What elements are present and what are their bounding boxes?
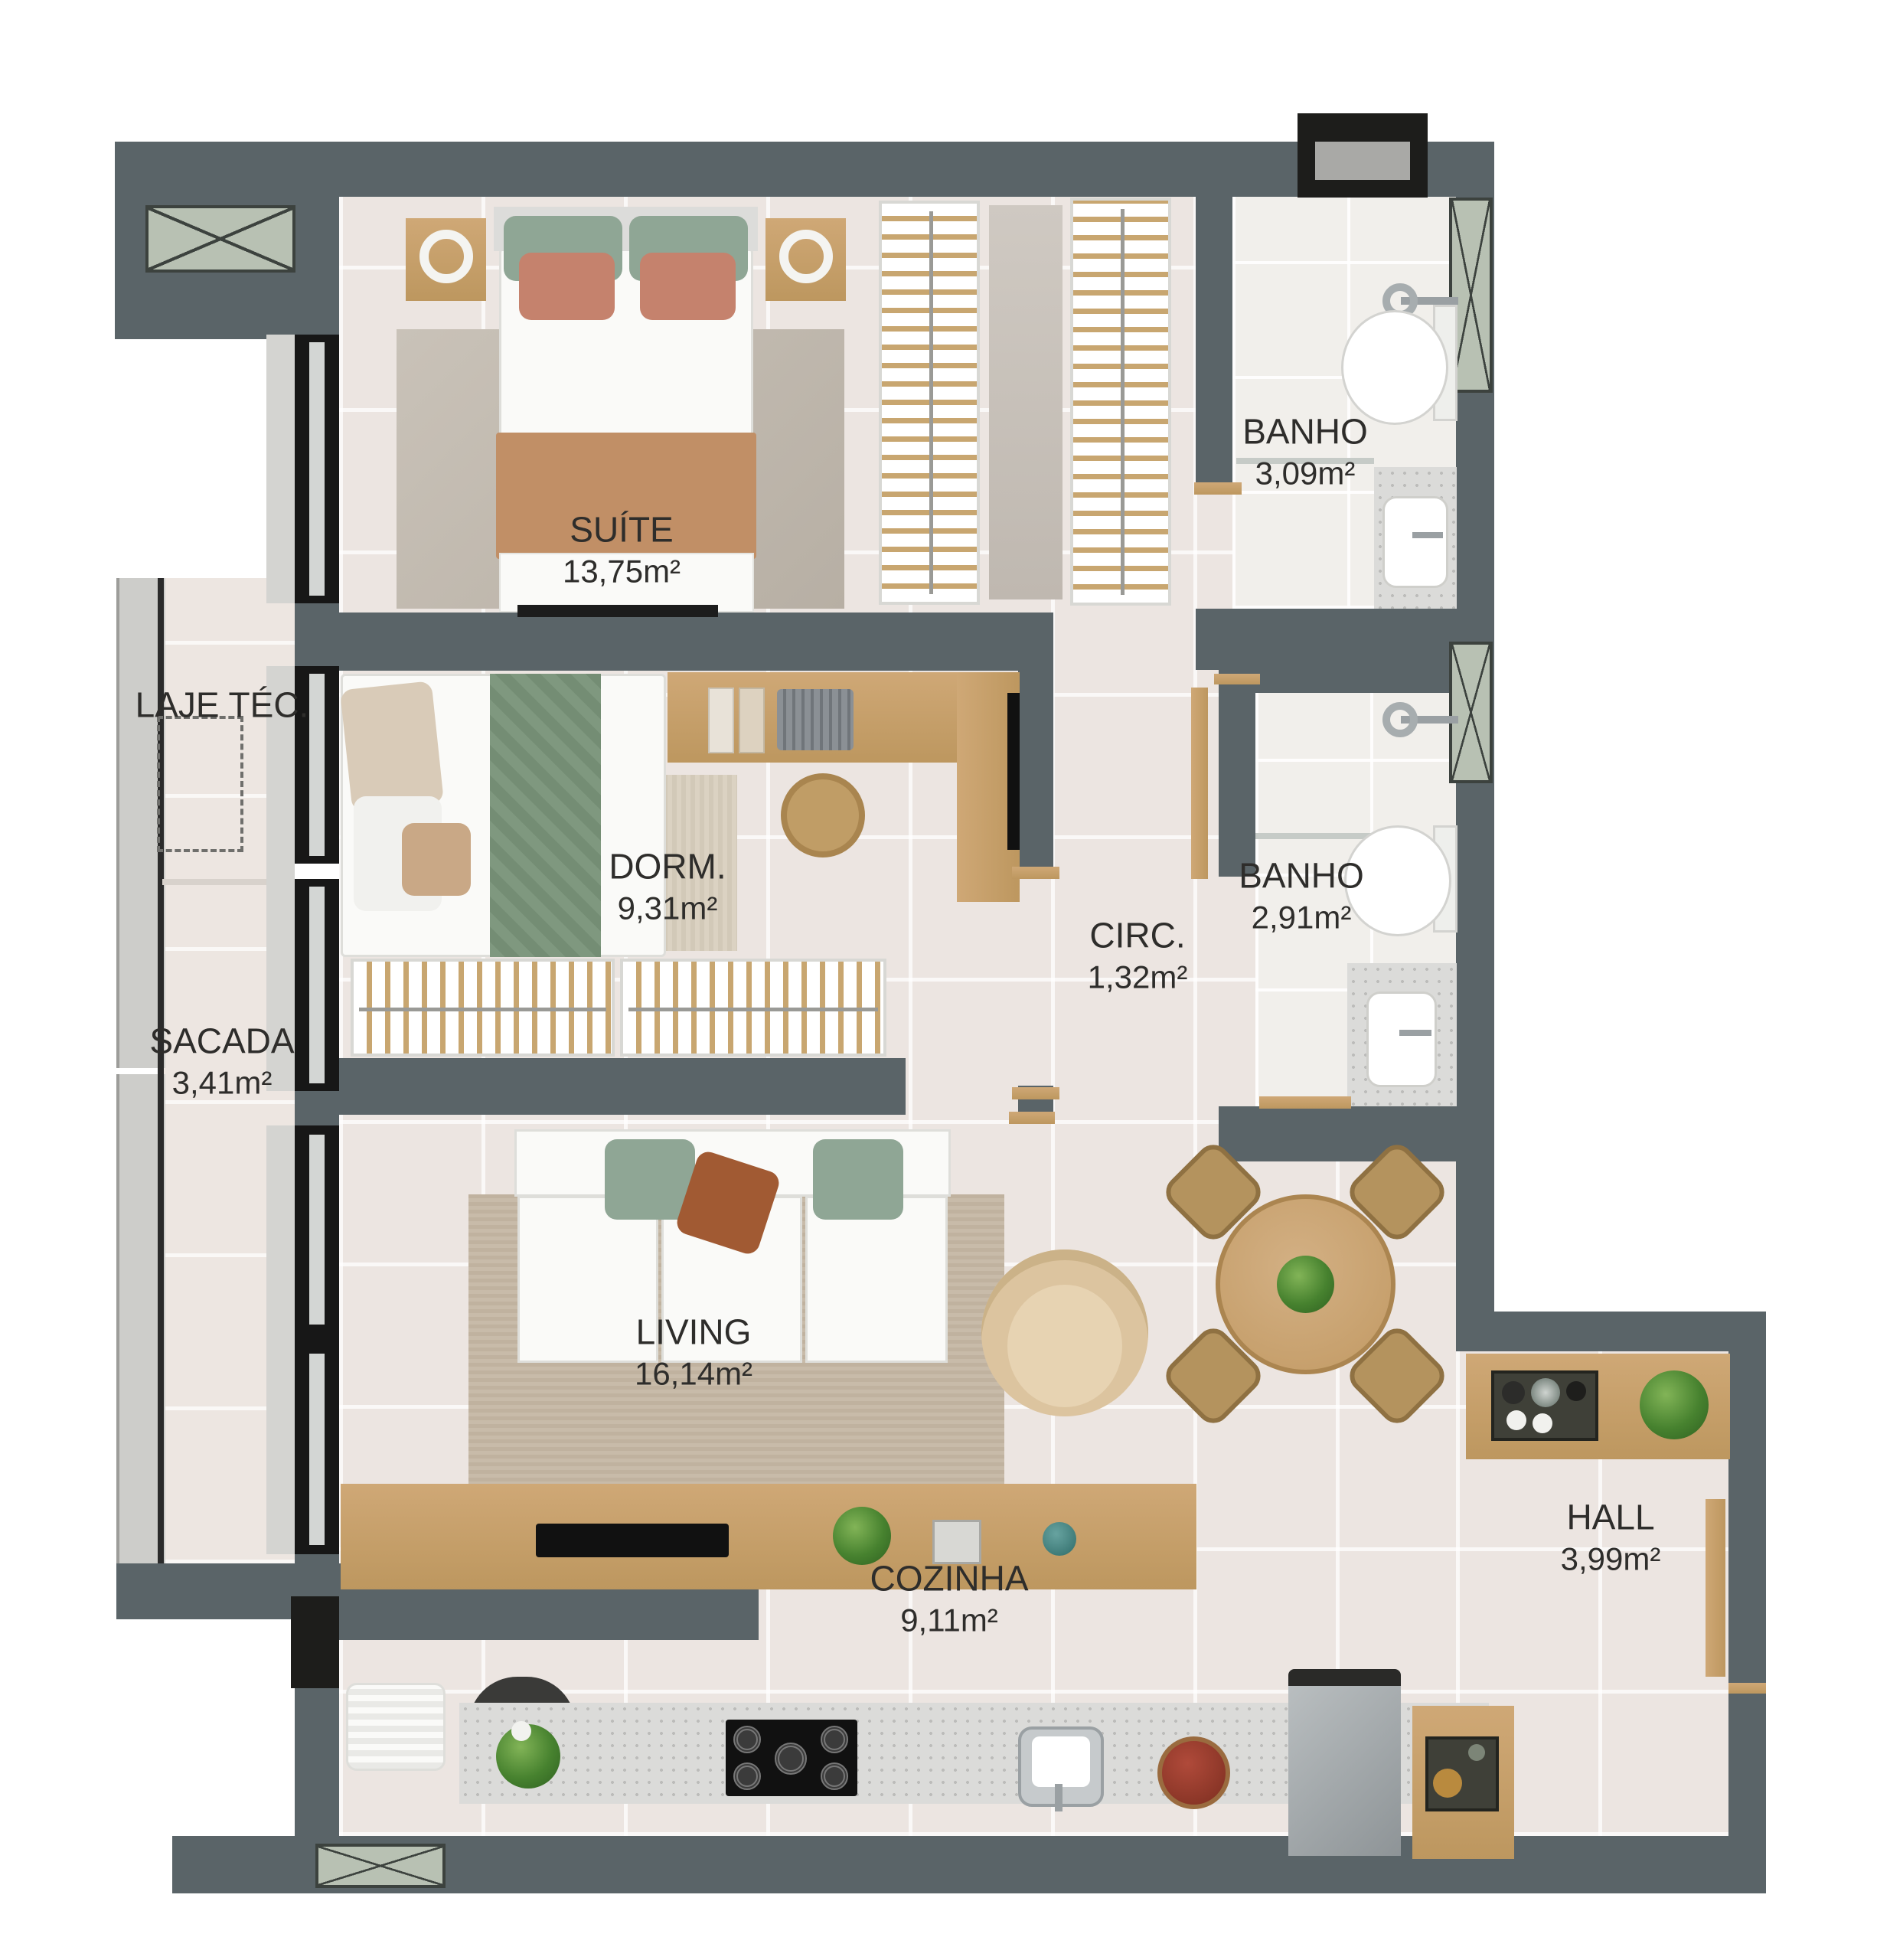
room-name: SACADA xyxy=(149,1019,294,1063)
suite-pillow-salmon-right xyxy=(640,253,736,320)
room-label-dorm: DORM. 9,31m² xyxy=(609,844,726,928)
room-name: BANHO xyxy=(1239,854,1364,897)
suite-sliding-door-track xyxy=(517,605,718,617)
wall-left-between-windows xyxy=(295,603,339,666)
floor-plan: SUÍTE 13,75m² DORM. 9,31m² BANHO 3,09m² … xyxy=(0,0,1890,1960)
room-area: 2,91m² xyxy=(1239,897,1364,937)
wall-left-dorm-living xyxy=(295,1091,339,1125)
hall-tray-cup-1 xyxy=(1506,1410,1526,1430)
cooktop-burner-1 xyxy=(733,1726,761,1753)
bathroom1-sink xyxy=(1382,496,1448,588)
dorm-door-jamb-bottom xyxy=(1012,1087,1059,1099)
fridge xyxy=(1288,1686,1401,1856)
suite-window-glass xyxy=(309,342,325,596)
kitchen-orchid-flower xyxy=(511,1721,531,1741)
closet-rack-left xyxy=(879,201,980,605)
hall-plant xyxy=(1640,1370,1709,1439)
suite-lamp-left xyxy=(419,230,473,283)
closet-aisle-rug xyxy=(989,205,1063,599)
room-name: COZINHA xyxy=(870,1557,1029,1600)
kitchen-corner-column xyxy=(291,1596,339,1688)
wall-right-lower xyxy=(1728,1312,1766,1893)
fridge-top xyxy=(1288,1669,1401,1686)
living-door-sill xyxy=(266,1125,295,1554)
bathroom1-door-threshold xyxy=(1194,482,1242,495)
room-name: DORM. xyxy=(609,844,726,888)
fruit-bowl xyxy=(1157,1736,1230,1809)
laje-tec-dashed-area xyxy=(157,716,243,852)
cooktop-burner-4 xyxy=(821,1762,848,1790)
wall-living-kitchen-divider xyxy=(339,1586,759,1640)
living-tv xyxy=(536,1524,729,1557)
cooktop-burner-3 xyxy=(733,1762,761,1790)
room-label-circ: CIRC. 1,32m² xyxy=(1088,913,1188,997)
bathroom1-toilet xyxy=(1341,310,1448,425)
hall-tray-pot-3 xyxy=(1566,1381,1586,1401)
kitchen-faucet xyxy=(1055,1784,1063,1811)
room-name: HALL xyxy=(1561,1495,1661,1539)
room-name: LIVING xyxy=(635,1310,752,1354)
desk-book-2 xyxy=(739,688,765,753)
wall-suite-dorm-divider xyxy=(339,612,1032,671)
room-name: BANHO xyxy=(1242,410,1368,453)
hall-tray-pot-2 xyxy=(1531,1378,1560,1407)
bathroom2-door-threshold xyxy=(1259,1096,1351,1109)
desk-chair xyxy=(781,773,865,857)
dorm-tv xyxy=(1007,693,1020,850)
wall-bathroom2-bottom xyxy=(1219,1106,1462,1161)
wall-left-suite-upper xyxy=(295,195,339,335)
living-armchair-cushion xyxy=(1007,1285,1122,1407)
living-balcony-door-glass-b xyxy=(309,1354,325,1545)
room-area: 3,09m² xyxy=(1242,453,1368,493)
room-name: CIRC. xyxy=(1088,913,1188,957)
kitchen-sink-basin xyxy=(1032,1736,1090,1787)
room-label-laje-tec: LAJE TÉC. xyxy=(135,683,309,727)
entry-door-leaf xyxy=(1706,1499,1725,1677)
wall-bathroom1-left xyxy=(1196,195,1232,486)
room-area: 3,41m² xyxy=(149,1063,294,1102)
dorm-pillow-beige xyxy=(340,681,444,812)
cooktop-burner-center xyxy=(775,1743,807,1775)
suite-window-sill xyxy=(266,335,295,603)
bathroom2-sink xyxy=(1366,991,1437,1087)
circ-threshold-top xyxy=(1214,674,1260,684)
hall-tray-pot-1 xyxy=(1502,1381,1525,1404)
living-balcony-door-glass-a xyxy=(309,1135,325,1325)
wall-bathroom2-left xyxy=(1219,693,1255,877)
room-area: 3,99m² xyxy=(1561,1539,1661,1579)
bathroom2-faucet xyxy=(1399,1030,1431,1036)
dorm-wardrobe-right xyxy=(620,959,886,1057)
wall-step-hall xyxy=(1494,1312,1766,1351)
sofa-seat-3 xyxy=(805,1196,948,1363)
dining-table-plant xyxy=(1277,1256,1334,1313)
dorm-pillow-small xyxy=(402,823,471,896)
dorm-window-b-glass xyxy=(309,887,325,1083)
room-label-banho-suite: BANHO 3,09m² xyxy=(1242,410,1368,493)
cooktop-burner-2 xyxy=(821,1726,848,1753)
laundry-tub xyxy=(346,1683,446,1771)
room-label-suite: SUÍTE 13,75m² xyxy=(563,508,681,591)
room-area: 1,32m² xyxy=(1088,957,1188,997)
wall-bathroom2-top xyxy=(1219,639,1462,693)
dorm-door-jamb-top xyxy=(1012,867,1059,879)
room-label-hall: HALL 3,99m² xyxy=(1561,1495,1661,1579)
sofa-pillow-green-right xyxy=(813,1139,903,1220)
coffee-cabinet-cup xyxy=(1468,1744,1485,1761)
room-label-cozinha: COZINHA 9,11m² xyxy=(870,1557,1029,1640)
room-label-banho-social: BANHO 2,91m² xyxy=(1239,854,1364,937)
bathroom2-shower-head xyxy=(1382,702,1418,737)
desk-book-1 xyxy=(708,688,734,753)
window-hatch-bathroom2 xyxy=(1449,642,1493,783)
duct-shaft-inner xyxy=(1315,142,1410,180)
bathroom2-pocket-door xyxy=(1191,688,1208,879)
room-name: SUÍTE xyxy=(563,508,681,551)
closet-rack-right xyxy=(1070,198,1171,606)
room-area: 16,14m² xyxy=(635,1354,752,1393)
room-area: 9,11m² xyxy=(870,1600,1029,1640)
dorm-window-a-glass xyxy=(309,674,325,856)
room-area: 9,31m² xyxy=(609,888,726,928)
wall-dorm-right-upper xyxy=(1018,612,1053,877)
bathroom1-faucet xyxy=(1412,532,1443,538)
suite-lamp-right xyxy=(779,230,833,283)
hall-tray-cup-2 xyxy=(1533,1413,1552,1433)
room-label-living: LIVING 16,14m² xyxy=(635,1310,752,1393)
console-vase xyxy=(1043,1522,1076,1556)
room-area: 13,75m² xyxy=(563,551,681,591)
wall-dorm-living-divider xyxy=(339,1058,906,1115)
dorm-green-throw xyxy=(490,674,601,957)
circ-threshold-left xyxy=(1009,1112,1055,1124)
dorm-wardrobe-left xyxy=(351,959,615,1057)
room-label-sacada: SACADA 3,41m² xyxy=(149,1019,294,1102)
entry-door-threshold xyxy=(1728,1683,1766,1694)
desk-laptop xyxy=(777,689,854,750)
coffee-cabinet-plate xyxy=(1433,1769,1462,1798)
suite-pillow-salmon-left xyxy=(519,253,615,320)
window-hatch-kitchen xyxy=(315,1844,446,1888)
window-hatch-top-left xyxy=(145,205,295,273)
room-name: LAJE TÉC. xyxy=(135,683,309,727)
